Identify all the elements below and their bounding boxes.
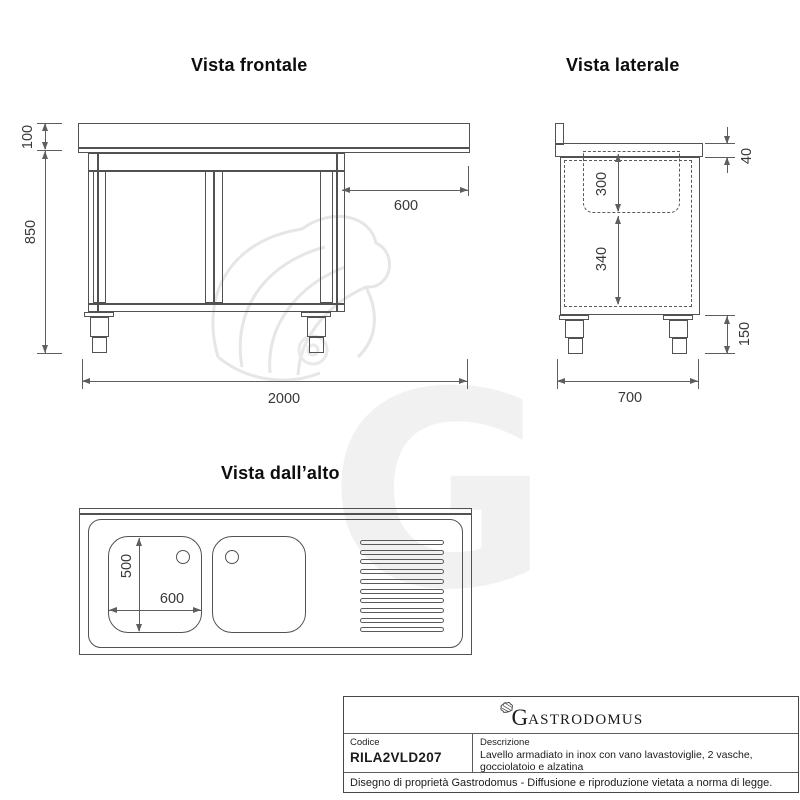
drain-slot <box>360 589 444 594</box>
dim-100-tick-top <box>37 123 62 124</box>
title-block-data-row: Codice RILA2VLD207 Descrizione Lavello a… <box>344 734 798 773</box>
side-right-leg <box>669 320 688 338</box>
drain-slot <box>360 540 444 545</box>
top-view-title: Vista dall’alto <box>221 463 340 484</box>
dim-150-arrow-up <box>724 316 730 324</box>
drain-slot <box>360 569 444 574</box>
dim-600b-arrow-left <box>109 607 117 613</box>
top-backsplash-edge-line <box>79 513 472 515</box>
front-right-leg <box>307 317 326 337</box>
front-cabinet-bottom-rail <box>88 303 345 305</box>
drain-slot <box>360 550 444 555</box>
description-label: Descrizione <box>480 737 798 748</box>
dim-front-overhang-width: 600 <box>394 198 418 214</box>
dim-side-total-depth: 700 <box>618 390 642 406</box>
description-line2: gocciolatoio e alzatina <box>480 761 583 773</box>
drain-slot <box>360 627 444 632</box>
dim-side-interior-height: 340 <box>594 247 610 271</box>
dim-700-extension-right <box>698 359 699 389</box>
dim-top-basin-width: 600 <box>160 591 184 607</box>
dim-100-arrow-up <box>42 123 48 131</box>
dim-2000-extension-left <box>82 359 83 389</box>
dim-side-top-thickness: 40 <box>739 148 755 164</box>
dim-top-basin-depth: 500 <box>119 554 135 578</box>
drainboard-lines <box>360 540 444 633</box>
logo-text: ASTRODOMUS <box>528 712 643 729</box>
dim-40-tick-top <box>705 143 735 144</box>
front-view-title: Vista frontale <box>191 55 308 76</box>
dim-300-arrow-up <box>615 154 621 162</box>
drain-slot <box>360 579 444 584</box>
dim-500-line <box>139 538 140 631</box>
front-left-foot <box>92 337 107 353</box>
front-door-right-stile <box>320 170 333 303</box>
dim-300-arrow-down <box>615 204 621 212</box>
dim-side-leg-height: 150 <box>737 322 753 346</box>
title-block-logo-row: GASTRODOMUS <box>344 697 798 734</box>
top-tap-hole-right <box>225 550 239 564</box>
dim-front-body-height: 850 <box>23 220 39 244</box>
dim-340-arrow-up <box>615 216 621 224</box>
dim-40-arrow-down <box>724 136 730 144</box>
side-left-leg <box>565 320 584 338</box>
drain-slot <box>360 559 444 564</box>
dim-500-arrow-up <box>136 538 142 546</box>
dim-700-arrow-left <box>557 378 565 384</box>
dim-600-arrow-left <box>342 187 350 193</box>
dim-600b-line <box>109 610 201 611</box>
dim-front-backsplash-height: 100 <box>20 125 36 149</box>
dim-600-arrow-right <box>460 187 468 193</box>
dim-2000-arrow-right <box>459 378 467 384</box>
title-block-footer-row: Disegno di proprietà Gastrodomus - Diffu… <box>344 773 798 792</box>
copyright-note: Disegno di proprietà Gastrodomus - Diffu… <box>350 777 772 789</box>
top-basin-right <box>212 536 306 633</box>
dim-side-basin-depth: 300 <box>594 172 610 196</box>
drain-slot <box>360 608 444 613</box>
code-label: Codice <box>350 737 472 748</box>
dim-150-arrow-down <box>724 346 730 354</box>
side-right-foot <box>672 338 687 354</box>
dim-2000-extension-right <box>467 359 468 389</box>
side-left-foot <box>568 338 583 354</box>
dim-150-tick-top <box>705 315 735 316</box>
dim-500-arrow-down <box>136 624 142 632</box>
drain-slot <box>360 598 444 603</box>
technical-drawing-page: G Vista frontale 100 850 <box>0 0 800 800</box>
title-block: GASTRODOMUS Codice RILA2VLD207 Descrizio… <box>343 696 799 793</box>
front-door-middle-stile-left <box>205 170 214 303</box>
front-countertop-lip-line <box>78 147 470 149</box>
dim-850-line <box>45 150 46 353</box>
dim-700-extension-left <box>557 359 558 389</box>
code-value: RILA2VLD207 <box>350 750 472 765</box>
dim-100-arrow-down <box>42 142 48 150</box>
dim-300-line <box>618 154 619 211</box>
dim-340-arrow-down <box>615 297 621 305</box>
front-countertop <box>78 123 470 153</box>
front-door-left-stile <box>93 170 106 303</box>
front-right-foot <box>309 337 324 353</box>
dim-2000-line <box>82 381 467 382</box>
front-door-middle-stile-right <box>214 170 223 303</box>
top-basin-left <box>108 536 202 633</box>
dim-2000-arrow-left <box>82 378 90 384</box>
dim-700-arrow-right <box>690 378 698 384</box>
description-line1: Lavello armadiato in inox con vano lavas… <box>480 749 753 761</box>
dim-100-tick-bottom <box>37 150 62 151</box>
dim-850-arrow-down <box>42 345 48 353</box>
gastrodomus-logo: GASTRODOMUS <box>499 701 644 729</box>
side-view-title: Vista laterale <box>566 55 680 76</box>
front-cabinet-right-inner-wall <box>336 153 338 312</box>
dim-700-line <box>557 381 698 382</box>
top-tap-hole-left <box>176 550 190 564</box>
dim-850-tick-bottom <box>37 353 62 354</box>
front-left-leg <box>90 317 109 337</box>
drain-slot <box>360 618 444 623</box>
dim-600-line <box>342 190 468 191</box>
dim-600-extension <box>468 166 469 196</box>
description-text: Lavello armadiato in inox con vano lavas… <box>480 749 798 774</box>
code-cell: Codice RILA2VLD207 <box>344 734 473 772</box>
dim-340-line <box>618 216 619 304</box>
dim-front-total-width: 2000 <box>268 391 300 407</box>
dim-850-arrow-up <box>42 151 48 159</box>
description-cell: Descrizione Lavello armadiato in inox co… <box>473 734 798 775</box>
dim-40-tick-bottom <box>705 157 735 158</box>
dim-150-tick-bottom <box>705 353 735 354</box>
dim-40-arrow-up <box>724 157 730 165</box>
side-backsplash <box>555 123 564 145</box>
dim-600b-arrow-right <box>193 607 201 613</box>
